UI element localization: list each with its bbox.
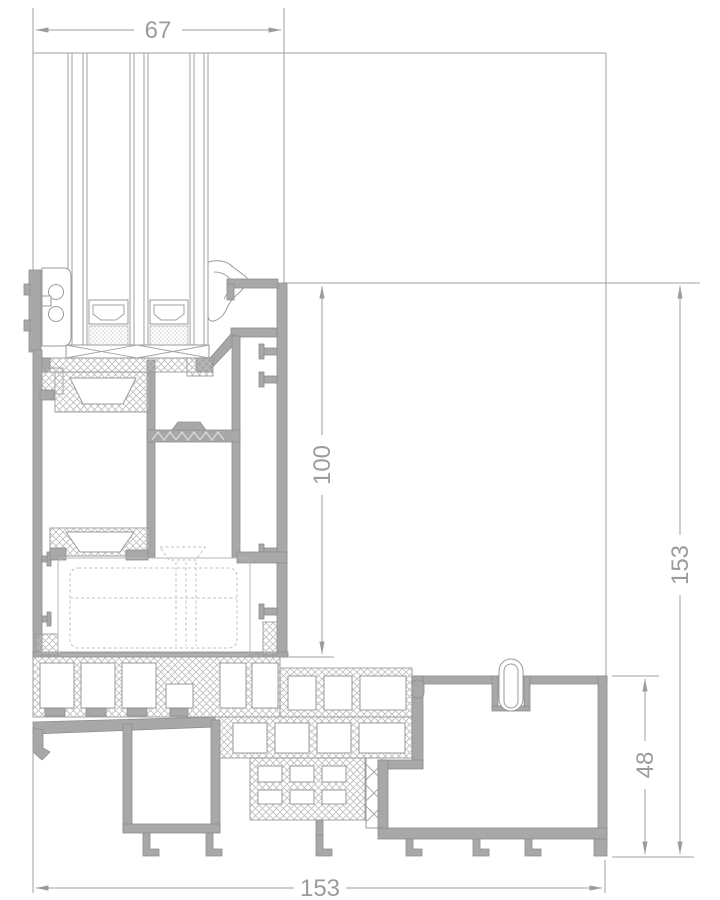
dimension-label-67: 67 [145, 17, 172, 44]
sill-base-profile [33, 657, 412, 856]
dimension-frame-height: 100 [288, 286, 336, 657]
section-drawing: 67 100 153 48 153 [0, 0, 720, 900]
dimension-label-48: 48 [632, 752, 659, 779]
triple-glazing-unit [66, 53, 209, 358]
dimension-label-153-bottom: 153 [300, 875, 340, 900]
glazing-spacers [89, 300, 188, 345]
glass-pane [190, 53, 208, 345]
dimension-glazing-width: 67 [36, 17, 281, 44]
section-drawing-canvas: 67 100 153 48 153 [0, 0, 720, 900]
dimension-sill-height: 48 [612, 676, 659, 854]
seal-clip-loop [492, 659, 530, 711]
dimension-label-153-right: 153 [667, 545, 694, 585]
setting-block [66, 345, 209, 358]
thermal-break-zone [36, 358, 277, 655]
end-cap-profile [378, 659, 607, 856]
glazing-gasket-left [24, 268, 71, 352]
hidden-sash-outline [58, 547, 250, 655]
dimension-label-100: 100 [309, 445, 336, 485]
clip-band [147, 422, 240, 442]
glass-pane [130, 53, 148, 345]
section-boundary [33, 8, 700, 676]
